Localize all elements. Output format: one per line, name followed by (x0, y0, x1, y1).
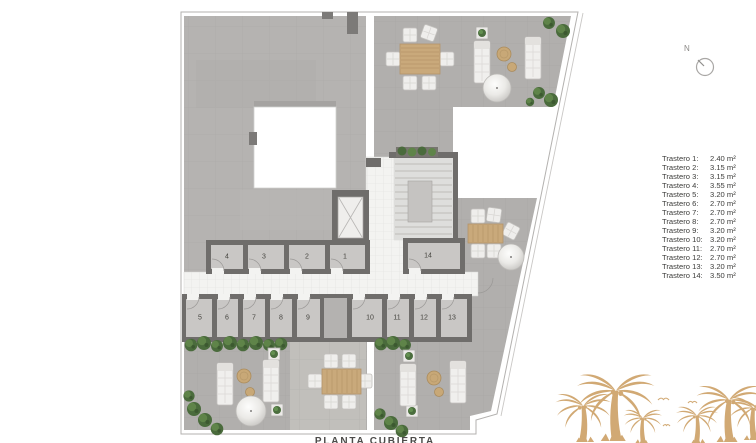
legend-area-value: 3.15 m² (710, 172, 747, 181)
floorplan-drawing (0, 0, 756, 443)
legend-area-value: 2.70 m² (710, 199, 747, 208)
legend-row: Trastero 13:3.20 m² (662, 262, 747, 271)
legend-area-value: 3.20 m² (710, 190, 747, 199)
dome-skylight-right (498, 244, 524, 270)
legend-row: Trastero 4:3.55 m² (662, 181, 747, 190)
legend-room-label: Trastero 2: (662, 163, 710, 172)
legend-area-value: 3.15 m² (710, 163, 747, 172)
legend-room-label: Trastero 1: (662, 154, 710, 163)
legend-room-label: Trastero 14: (662, 271, 710, 280)
legend-area-value: 3.20 m² (710, 226, 747, 235)
dome-skylight-bottom (236, 396, 266, 426)
legend-row: Trastero 6:2.70 m² (662, 199, 747, 208)
legend-area-value: 2.70 m² (710, 244, 747, 253)
room-label-11: 11 (393, 315, 400, 322)
floorplan-page: 1234567891011121314 Trastero 1:2.40 m²Tr… (0, 0, 756, 443)
legend-row: Trastero 3:3.15 m² (662, 172, 747, 181)
legend-room-label: Trastero 11: (662, 244, 710, 253)
room-label-14: 14 (424, 253, 432, 260)
legend-row: Trastero 5:3.20 m² (662, 190, 747, 199)
legend-row: Trastero 8:2.70 m² (662, 217, 747, 226)
legend-row: Trastero 10:3.20 m² (662, 235, 747, 244)
room-label-5: 5 (198, 315, 202, 322)
expansion-gap-top (366, 13, 374, 160)
room-label-2: 2 (305, 254, 309, 261)
area-legend: Trastero 1:2.40 m²Trastero 2:3.15 m²Tras… (662, 154, 747, 280)
legend-room-label: Trastero 9: (662, 226, 710, 235)
service-block (320, 294, 351, 342)
compass-icon (680, 42, 724, 82)
room-label-1: 1 (343, 254, 347, 261)
legend-room-label: Trastero 8: (662, 217, 710, 226)
room-label-10: 10 (366, 315, 374, 322)
legend-room-label: Trastero 13: (662, 262, 710, 271)
legend-row: Trastero 7:2.70 m² (662, 208, 747, 217)
room-label-12: 12 (420, 315, 428, 322)
legend-area-value: 3.20 m² (710, 235, 747, 244)
legend-area-value: 2.70 m² (710, 208, 747, 217)
legend-room-label: Trastero 6: (662, 199, 710, 208)
legend-room-label: Trastero 7: (662, 208, 710, 217)
legend-row: Trastero 9:3.20 m² (662, 226, 747, 235)
legend-area-value: 3.55 m² (710, 181, 747, 190)
legend-row: Trastero 2:3.15 m² (662, 163, 747, 172)
legend-room-label: Trastero 10: (662, 235, 710, 244)
legend-area-value: 2.40 m² (710, 154, 747, 163)
room-label-13: 13 (448, 315, 456, 322)
room-label-8: 8 (279, 315, 283, 322)
stair-landing (408, 181, 432, 222)
legend-row: Trastero 1:2.40 m² (662, 154, 747, 163)
plan-title: PLANTA CUBIERTA (285, 436, 465, 443)
skylight-void (254, 107, 336, 188)
legend-area-value: 2.70 m² (710, 217, 747, 226)
wood-table (400, 44, 440, 74)
void-wall-block (249, 132, 257, 145)
legend-row: Trastero 11:2.70 m² (662, 244, 747, 253)
legend-room-label: Trastero 12: (662, 253, 710, 262)
legend-room-label: Trastero 5: (662, 190, 710, 199)
room-label-3: 3 (262, 254, 266, 261)
bird-icon (658, 398, 697, 426)
legend-area-value: 2.70 m² (710, 253, 747, 262)
palm-watermark (555, 371, 756, 443)
void-edge-shadow (254, 101, 336, 107)
legend-room-label: Trastero 4: (662, 181, 710, 190)
legend-row: Trastero 14:3.50 m² (662, 271, 747, 280)
elevator (332, 190, 369, 245)
legend-room-label: Trastero 3: (662, 172, 710, 181)
north-compass: N (680, 42, 724, 82)
legend-area-value: 3.50 m² (710, 271, 747, 280)
dome-skylight-top (483, 74, 511, 102)
room-label-7: 7 (252, 315, 256, 322)
storage-room-14 (403, 238, 465, 274)
core-planter (396, 147, 438, 158)
wood-table (322, 369, 361, 394)
room-label-4: 4 (225, 254, 229, 261)
room-label-6: 6 (225, 315, 229, 322)
legend-area-value: 3.20 m² (710, 262, 747, 271)
legend-row: Trastero 12:2.70 m² (662, 253, 747, 262)
room-label-9: 9 (306, 315, 310, 322)
